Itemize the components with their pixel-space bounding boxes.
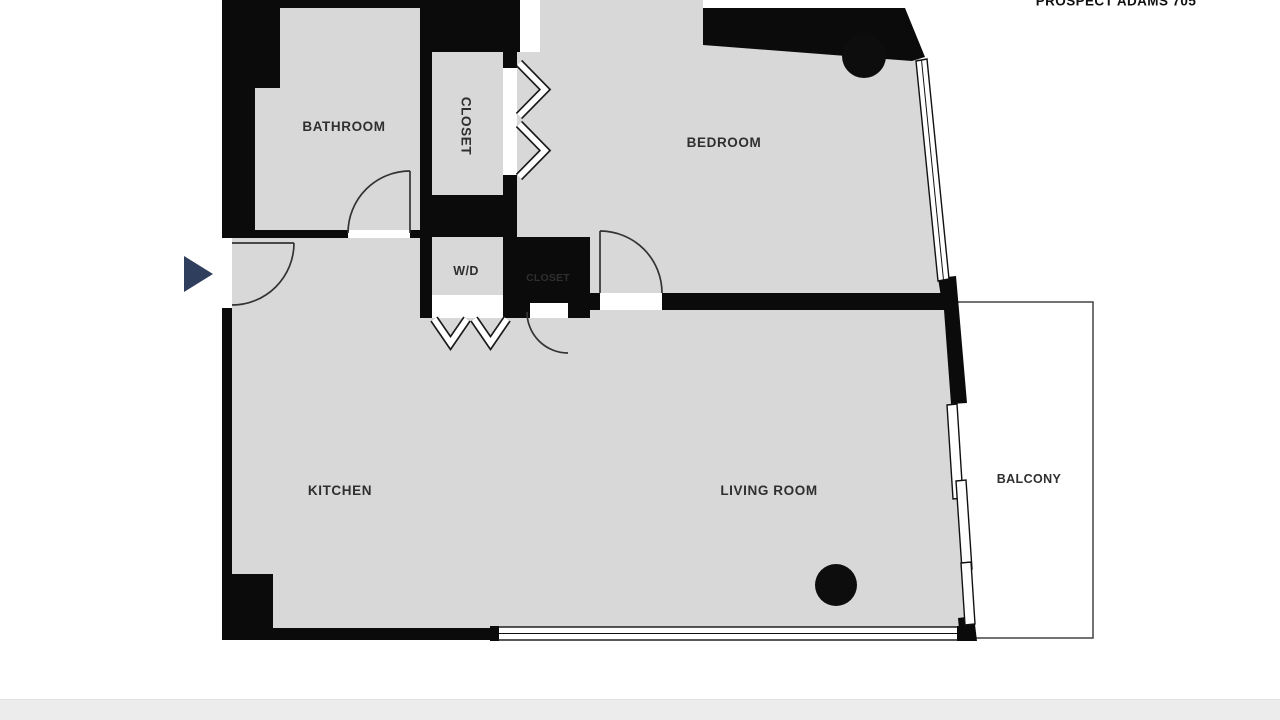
living-column-marker [815, 564, 857, 606]
floorplan-canvas: BATHROOM CLOSET BEDROOM W/D CLOSET KITCH… [0, 0, 1280, 720]
small-closet-label: CLOSET [526, 272, 570, 284]
living-room-label: LIVING ROOM [720, 483, 817, 498]
bedroom-label: BEDROOM [687, 135, 762, 150]
wd-label: W/D [453, 264, 479, 278]
rooms [232, 0, 965, 628]
floorplan-svg: BATHROOM CLOSET BEDROOM W/D CLOSET KITCH… [0, 0, 1280, 720]
bathroom-label: BATHROOM [302, 119, 385, 134]
hall-closet-label: CLOSET [459, 97, 474, 156]
bedroom-column-marker [842, 34, 886, 78]
entry-arrow-icon [184, 256, 213, 292]
plan-title: PROSPECT ADAMS 705 [1036, 0, 1197, 9]
bottom-bar [0, 699, 1280, 720]
kitchen-label: KITCHEN [308, 483, 372, 498]
balcony-label: BALCONY [997, 472, 1062, 486]
